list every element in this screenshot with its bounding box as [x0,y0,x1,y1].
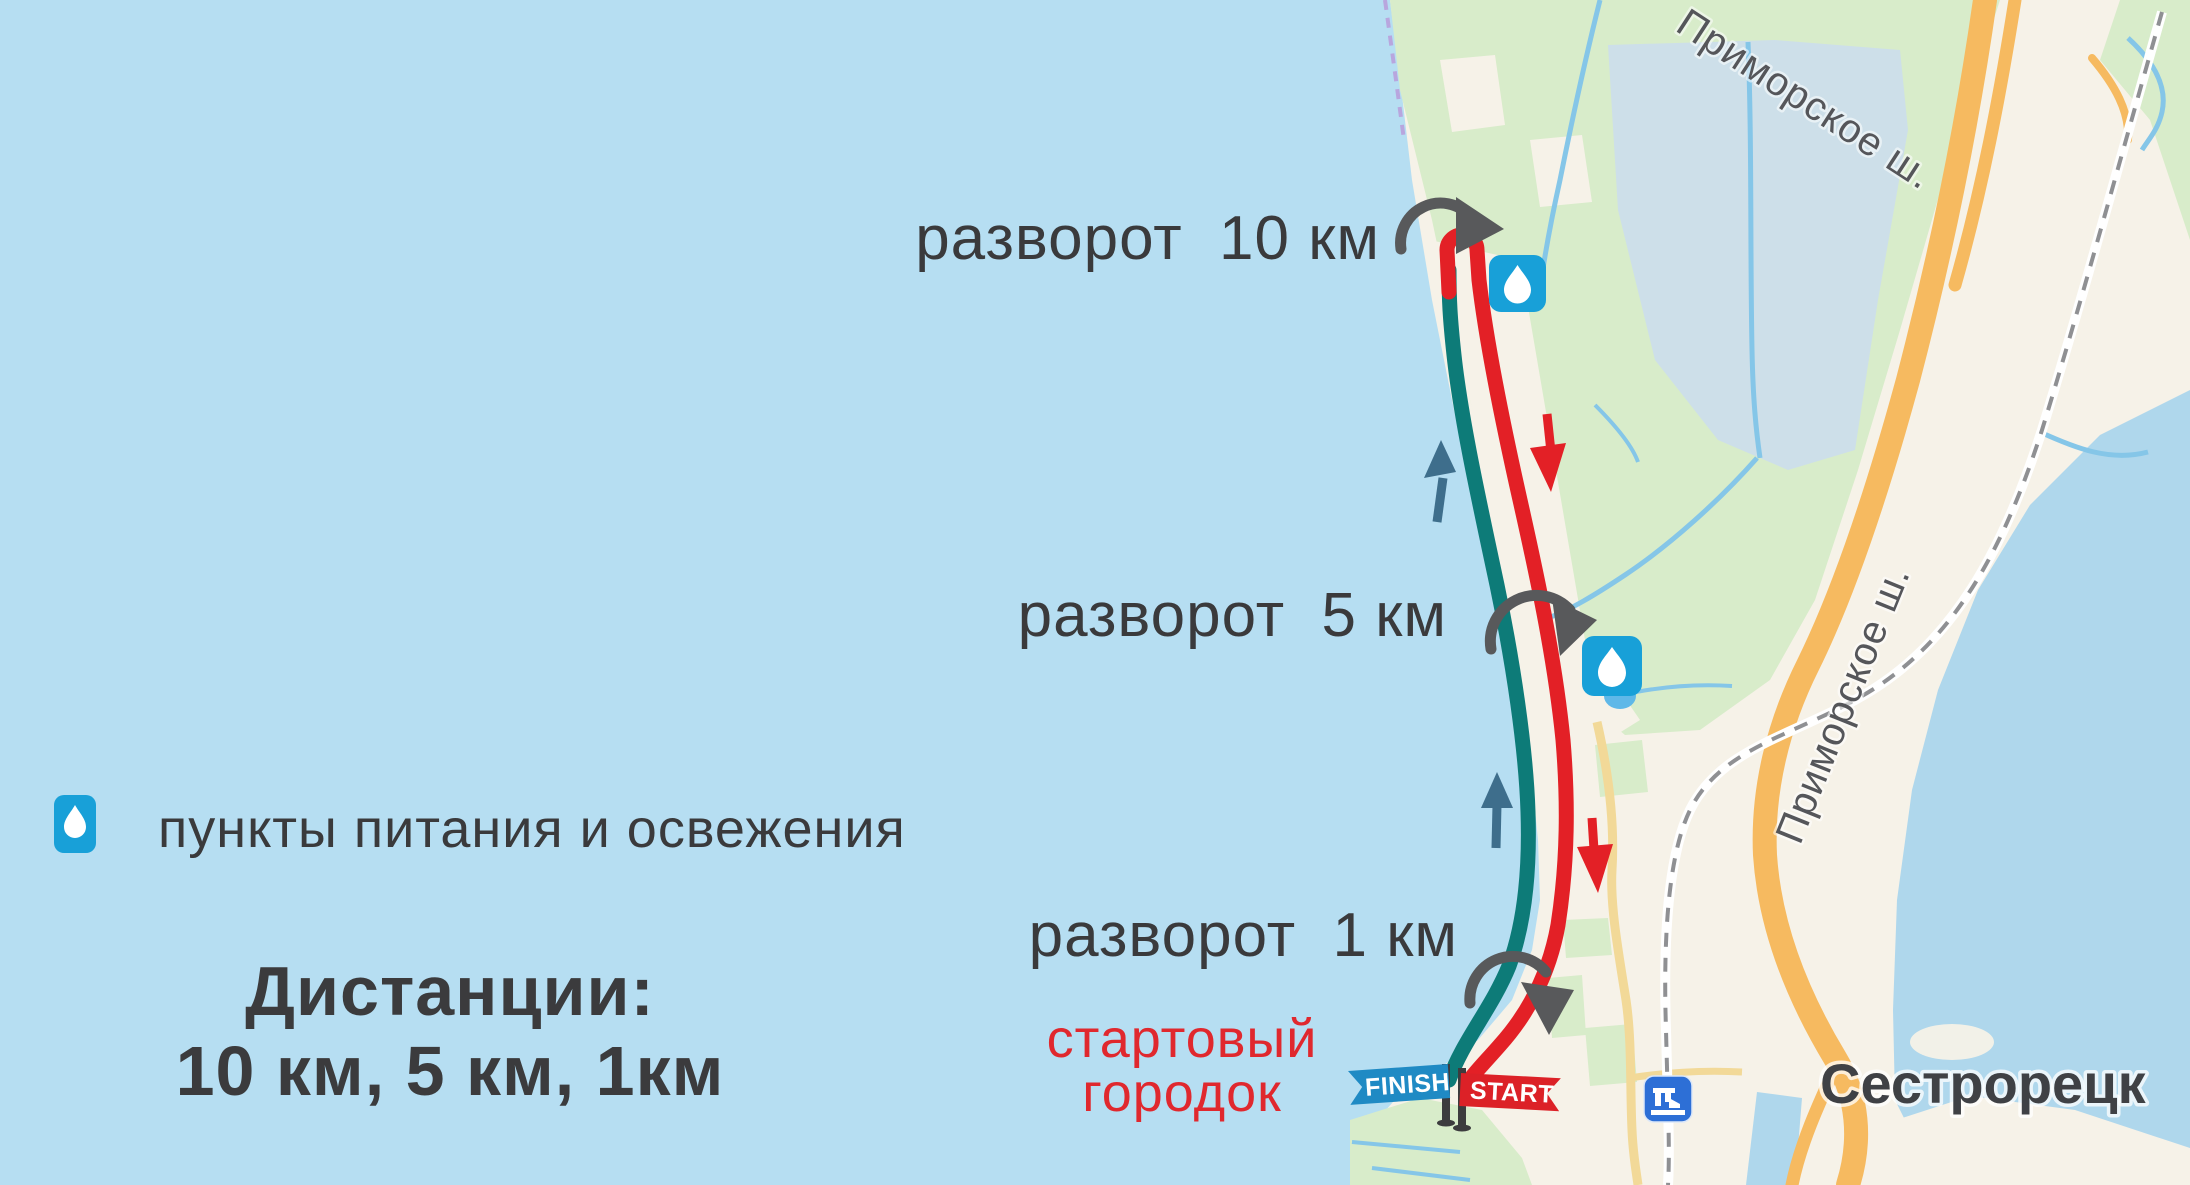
race-course-map: Приморское ш. Приморское ш. Сестрорецк [0,0,2190,1185]
finish-banner-label: FINISH [1364,1068,1451,1102]
gantry-post-foot [1453,1125,1471,1132]
distances-title: Дистанции: 10 км, 5 км, 1км [120,952,780,1112]
legend-aid-station [54,795,96,853]
landmark-icon [1644,1076,1692,1122]
turn-10km-label: разворот 10 км [880,203,1380,274]
start-town-label: стартовый городок [1002,1012,1362,1120]
start-town-line2: городок [1002,1066,1362,1120]
start-banner: START [1459,1073,1561,1111]
finish-banner: FINISH [1348,1064,1451,1105]
city-label: Сестрорецк [1820,1052,2147,1115]
turn-1km-label: разворот 1 км [958,900,1458,971]
gantry-post-foot [1437,1120,1455,1127]
distances-title-line2: 10 км, 5 км, 1км [120,1032,780,1112]
landmark-glyph-part [1651,1110,1685,1115]
turn-5km-label: разворот 5 км [950,580,1447,651]
distances-title-line1: Дистанции: [120,952,780,1032]
northbound-arrow-shaft [1437,478,1443,522]
legend-label: пункты питания и освежения [158,798,906,860]
aid-station-10km [1489,255,1546,312]
northbound-arrow-shaft [1496,805,1497,848]
aid-station-5km [1582,636,1642,696]
southbound-arrow-shaft [1592,818,1594,850]
landmark-glyph-part [1653,1088,1675,1093]
landmark-glyph-part [1655,1093,1661,1106]
start-banner-label: START [1469,1077,1554,1109]
start-town-line1: стартовый [1002,1012,1362,1066]
forest-patch-4 [1563,918,1612,958]
